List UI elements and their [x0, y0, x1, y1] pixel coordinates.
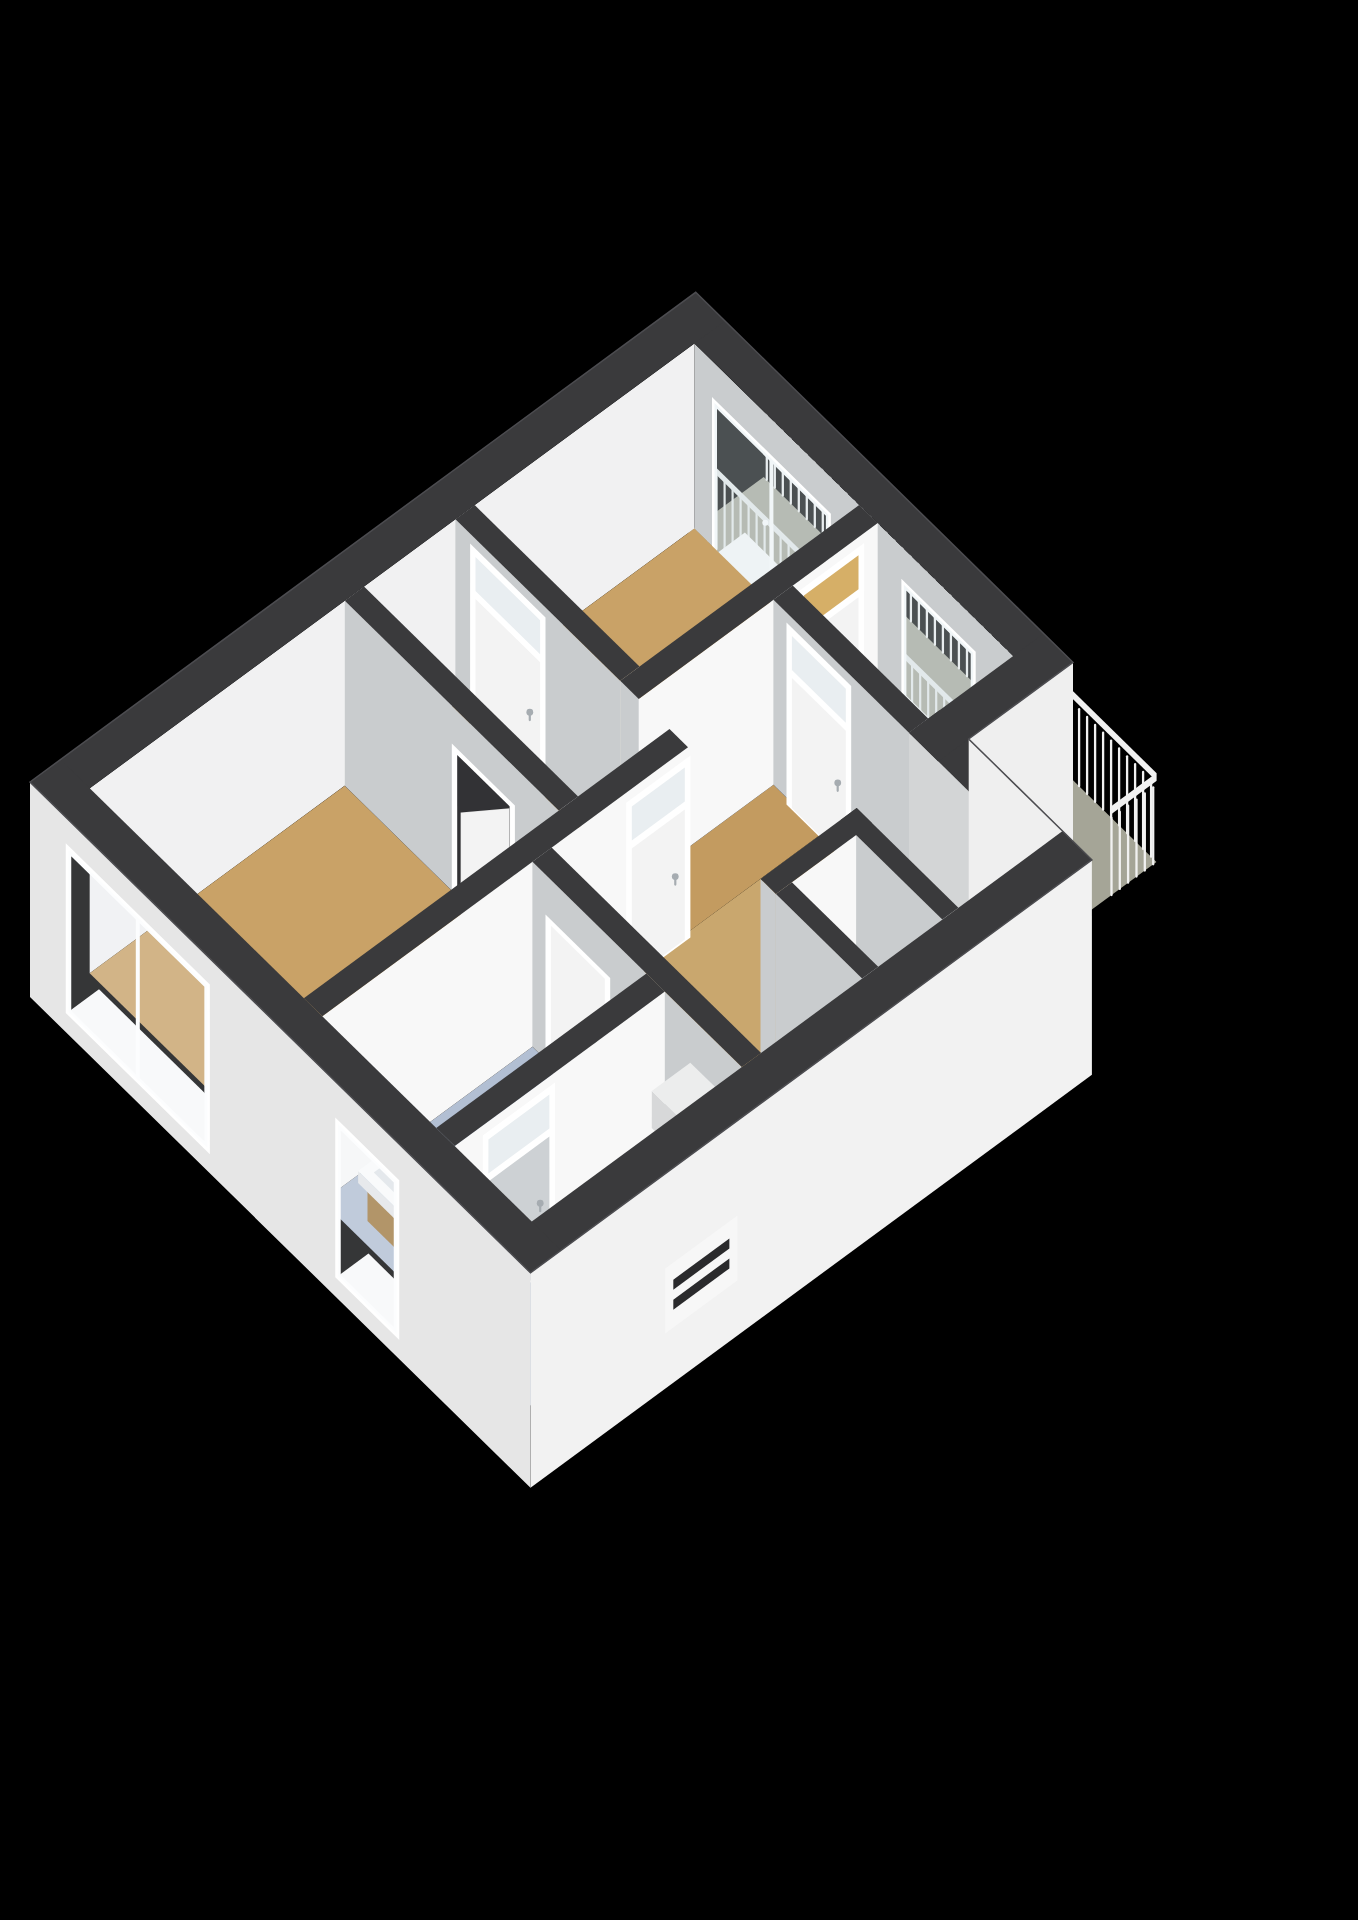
building [30, 292, 1156, 1488]
floorplan-stage [0, 0, 1358, 1920]
floorplan-3d-view [0, 0, 1358, 1920]
